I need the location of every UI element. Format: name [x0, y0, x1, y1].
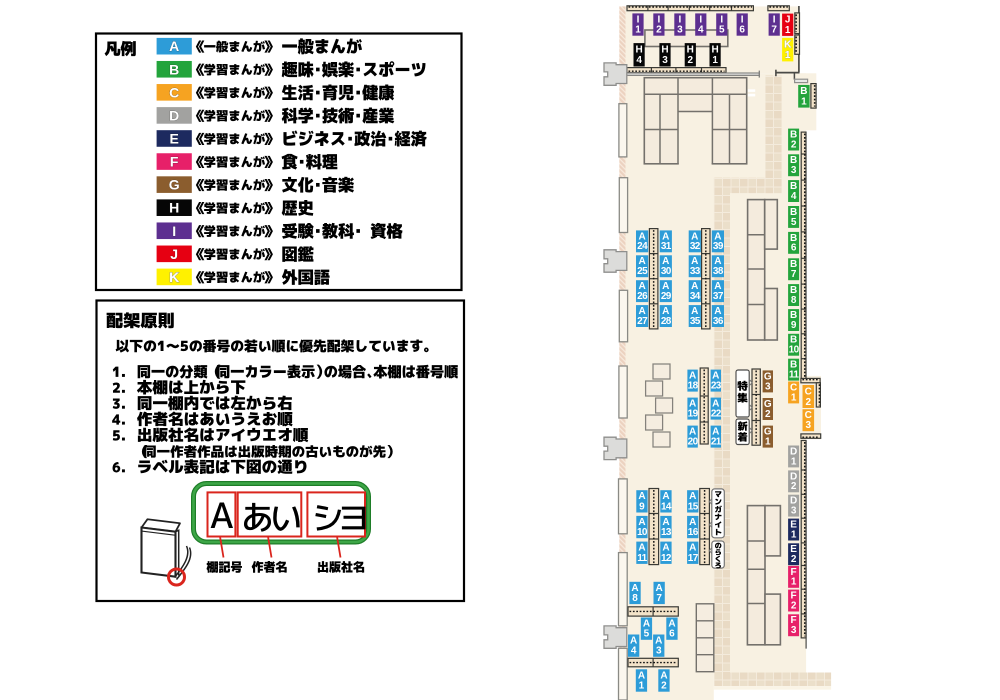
svg-text:H: H: [711, 45, 718, 56]
svg-text:28: 28: [661, 316, 672, 327]
svg-text:1: 1: [791, 577, 797, 588]
svg-text:G: G: [169, 177, 180, 193]
svg-text:8: 8: [791, 295, 797, 306]
svg-text:27: 27: [637, 316, 648, 327]
svg-text:15: 15: [688, 501, 699, 512]
svg-text:E: E: [170, 130, 179, 146]
svg-text:6: 6: [669, 629, 675, 640]
svg-text:32: 32: [690, 241, 701, 252]
svg-text:A: A: [169, 38, 179, 54]
svg-text:7: 7: [656, 593, 662, 604]
svg-text:9: 9: [791, 320, 797, 331]
svg-text:1: 1: [791, 456, 797, 467]
svg-text:J: J: [170, 246, 178, 262]
svg-text:1: 1: [801, 96, 807, 107]
svg-text:3: 3: [791, 165, 797, 176]
svg-text:F: F: [170, 154, 179, 170]
svg-text:3: 3: [677, 25, 683, 36]
svg-text:38: 38: [713, 266, 724, 277]
svg-text:3: 3: [806, 420, 812, 431]
svg-text:12: 12: [661, 553, 672, 564]
svg-text:13: 13: [661, 527, 672, 538]
svg-text:8: 8: [632, 593, 638, 604]
svg-text:2: 2: [791, 600, 797, 611]
svg-text:9: 9: [639, 501, 645, 512]
svg-text:C: C: [169, 84, 179, 100]
svg-text:1: 1: [765, 437, 771, 448]
svg-text:33: 33: [690, 266, 701, 277]
svg-text:2: 2: [791, 554, 797, 565]
svg-text:2: 2: [688, 55, 694, 66]
svg-text:3: 3: [662, 55, 668, 66]
svg-text:16: 16: [688, 527, 699, 538]
svg-text:H: H: [169, 200, 179, 216]
svg-text:11: 11: [637, 553, 647, 564]
svg-text:H: H: [635, 45, 642, 56]
svg-text:3: 3: [791, 625, 797, 636]
svg-text:3: 3: [656, 646, 662, 657]
svg-text:6: 6: [739, 25, 745, 36]
svg-text:B: B: [169, 61, 179, 77]
svg-text:1: 1: [785, 50, 791, 61]
svg-text:C: C: [805, 386, 812, 397]
svg-text:H: H: [687, 45, 694, 56]
svg-text:17: 17: [688, 553, 699, 564]
svg-text:24: 24: [637, 241, 648, 252]
svg-text:4: 4: [698, 25, 704, 36]
svg-text:20: 20: [688, 437, 699, 448]
svg-text:1: 1: [791, 529, 797, 540]
svg-text:35: 35: [690, 316, 701, 327]
svg-text:1: 1: [635, 25, 641, 36]
svg-text:7: 7: [771, 25, 777, 36]
svg-text:5: 5: [644, 629, 650, 640]
svg-text:H: H: [661, 45, 668, 56]
svg-text:19: 19: [688, 409, 699, 420]
svg-text:D: D: [169, 107, 179, 123]
svg-text:25: 25: [637, 266, 648, 277]
svg-text:6: 6: [791, 243, 797, 254]
svg-text:34: 34: [690, 291, 701, 302]
svg-text:18: 18: [688, 381, 699, 392]
svg-text:11: 11: [789, 370, 799, 381]
svg-text:30: 30: [661, 266, 672, 277]
svg-text:37: 37: [713, 291, 724, 302]
svg-text:2: 2: [765, 409, 771, 420]
svg-text:1: 1: [785, 25, 791, 36]
svg-text:36: 36: [713, 316, 724, 327]
svg-text:21: 21: [711, 437, 722, 448]
svg-text:5: 5: [791, 217, 797, 228]
svg-text:2: 2: [661, 681, 667, 692]
svg-text:4: 4: [631, 646, 637, 657]
svg-text:10: 10: [637, 527, 648, 538]
svg-text:K: K: [169, 269, 179, 285]
svg-text:39: 39: [713, 241, 724, 252]
svg-text:3: 3: [765, 381, 771, 392]
svg-text:10: 10: [789, 345, 800, 356]
svg-text:22: 22: [711, 409, 722, 420]
svg-text:1: 1: [712, 55, 718, 66]
svg-text:K: K: [784, 39, 792, 50]
svg-text:I: I: [172, 223, 176, 239]
svg-text:2: 2: [791, 139, 797, 150]
svg-text:7: 7: [791, 269, 797, 280]
svg-text:3: 3: [791, 506, 797, 517]
svg-text:1: 1: [639, 681, 645, 692]
svg-text:4: 4: [636, 55, 642, 66]
svg-text:26: 26: [637, 291, 648, 302]
svg-text:2: 2: [656, 25, 662, 36]
svg-text:1: 1: [791, 392, 797, 403]
svg-text:14: 14: [661, 501, 672, 512]
svg-text:5: 5: [719, 25, 725, 36]
svg-text:23: 23: [711, 381, 722, 392]
svg-text:29: 29: [661, 291, 672, 302]
svg-text:2: 2: [791, 481, 797, 492]
svg-text:4: 4: [791, 191, 797, 202]
svg-text:2: 2: [806, 397, 812, 408]
svg-text:31: 31: [661, 241, 672, 252]
